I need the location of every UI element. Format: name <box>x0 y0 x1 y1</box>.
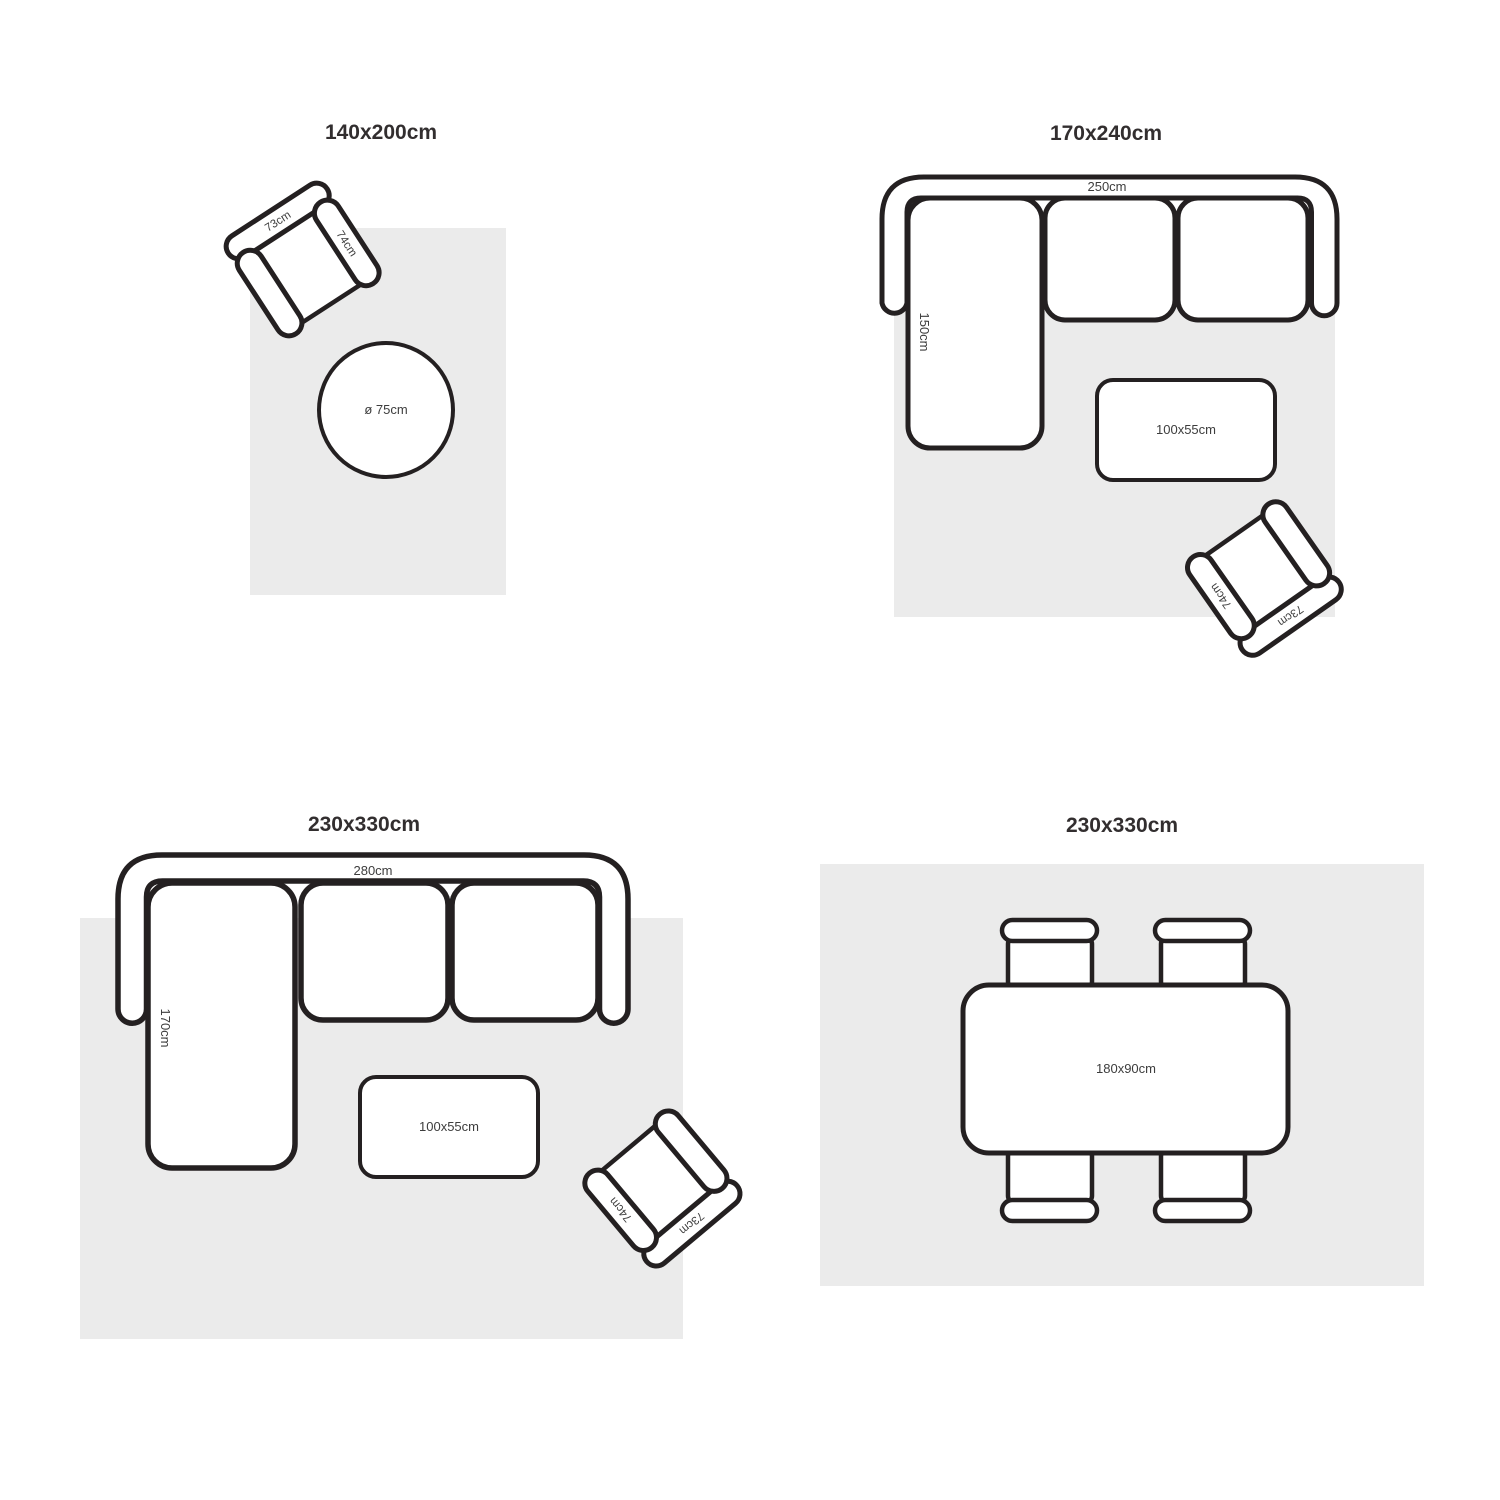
dining-table-dimension: 180x90cm <box>1096 1061 1156 1076</box>
rug-size-guide: 140x200cm 170x240cm 230x330cm 230x330cm … <box>0 0 1500 1500</box>
dining-chair-bottom-left <box>1002 1150 1097 1221</box>
dining-chair-seat <box>1008 938 1092 988</box>
dining-chair-back <box>1155 920 1250 941</box>
sofa-chaise-dimension: 170cm <box>158 1008 173 1047</box>
sofa-cushion <box>301 883 448 1020</box>
dining-chair-top-left <box>1002 920 1097 988</box>
sofa-cushion <box>1178 198 1308 320</box>
sofa-width-dimension: 250cm <box>1087 179 1126 194</box>
round-table-dimension: ø 75cm <box>364 402 407 417</box>
dining-chair-back <box>1002 1200 1097 1221</box>
sofa-chaise-dimension: 150cm <box>917 312 932 351</box>
dining-chair-seat <box>1008 1150 1092 1202</box>
armchair-top-right: 73cm 74cm <box>1182 497 1346 661</box>
sofa-cushion <box>452 883 598 1020</box>
sofa-width-dimension: 280cm <box>353 863 392 878</box>
dining-chair-back <box>1002 920 1097 941</box>
coffee-table-dimension: 100x55cm <box>1156 422 1216 437</box>
sofa-cushion <box>1045 198 1175 320</box>
dining-chair-seat <box>1161 938 1245 988</box>
furniture-linework: 73cm 74cm ø 75cm 250cm 150cm 100x55cm 73… <box>0 0 1500 1500</box>
dining-chair-top-right <box>1155 920 1250 988</box>
dining-chair-bottom-right <box>1155 1150 1250 1221</box>
armchair-top-left: 73cm 74cm <box>221 178 384 340</box>
dining-chair-seat <box>1161 1150 1245 1202</box>
coffee-table-dimension: 100x55cm <box>419 1119 479 1134</box>
armchair-bottom-left: 73cm 74cm <box>580 1106 746 1271</box>
dining-chair-back <box>1155 1200 1250 1221</box>
